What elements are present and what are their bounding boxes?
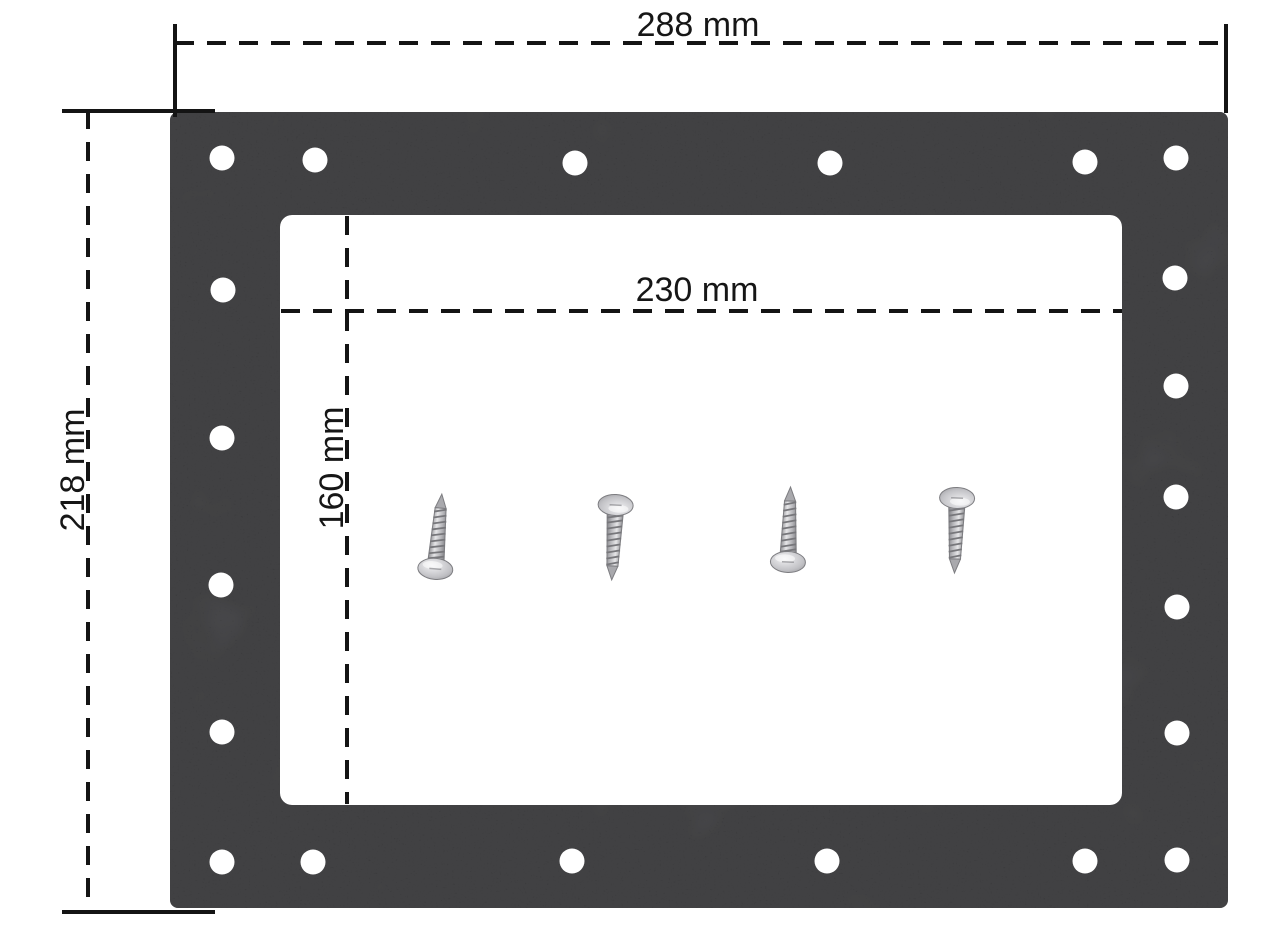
bolt-hole — [1164, 146, 1189, 171]
bolt-hole — [1164, 485, 1189, 510]
bolt-hole — [818, 151, 843, 176]
screw-3-tip-up — [770, 486, 808, 573]
dimension-inner-height: 160 mm — [313, 216, 351, 804]
bolt-hole — [815, 849, 840, 874]
dimension-outer-width: 288 mm — [175, 6, 1226, 117]
bolt-hole — [560, 849, 585, 874]
diagram-canvas: 288 mm 218 mm 230 mm 160 mm — [0, 0, 1280, 942]
bolt-hole — [1165, 848, 1190, 873]
outer-height-label: 218 mm — [54, 409, 92, 532]
bolt-holes — [209, 146, 1190, 875]
inner-width-label: 230 mm — [636, 271, 759, 309]
screw-4-head-up — [937, 487, 975, 574]
outer-width-label: 288 mm — [637, 6, 760, 44]
bolt-hole — [301, 850, 326, 875]
bolt-hole — [1163, 266, 1188, 291]
bolt-hole — [1165, 595, 1190, 620]
bolt-hole — [210, 146, 235, 171]
bolt-hole — [210, 426, 235, 451]
bolt-hole — [1073, 150, 1098, 175]
dimension-inner-width: 230 mm — [281, 271, 1122, 311]
bolt-hole — [209, 573, 234, 598]
bolt-hole — [1164, 374, 1189, 399]
screws — [417, 486, 975, 580]
bolt-hole — [1073, 849, 1098, 874]
screw-2-head-up — [594, 494, 633, 581]
inner-height-label: 160 mm — [313, 407, 351, 530]
gasket-dimension-diagram: 288 mm 218 mm 230 mm 160 mm — [0, 0, 1280, 942]
bolt-hole — [211, 278, 236, 303]
bolt-hole — [210, 850, 235, 875]
bolt-hole — [303, 148, 328, 173]
bolt-hole — [563, 151, 588, 176]
screw-1-tip-up — [417, 493, 459, 581]
bolt-hole — [1165, 721, 1190, 746]
bolt-hole — [210, 720, 235, 745]
